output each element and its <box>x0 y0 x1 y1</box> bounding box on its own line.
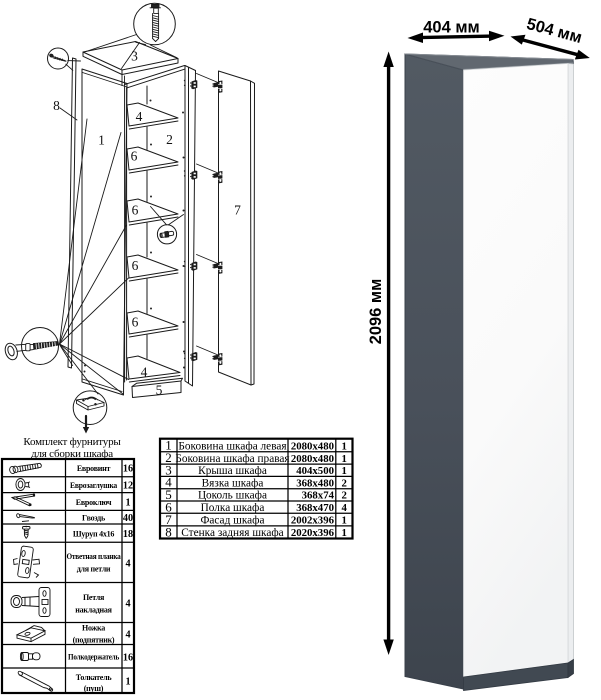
svg-text:3: 3 <box>131 49 138 64</box>
svg-text:1: 1 <box>341 465 346 477</box>
svg-text:Толкатель: Толкатель <box>76 673 113 682</box>
svg-text:368х480: 368х480 <box>296 477 334 489</box>
svg-text:1: 1 <box>341 515 346 527</box>
svg-text:5: 5 <box>156 383 163 398</box>
svg-text:Крыша шкафа: Крыша шкафа <box>198 465 267 477</box>
svg-text:Боковина шкафа правая: Боковина шкафа правая <box>175 453 289 465</box>
svg-text:6: 6 <box>132 203 139 218</box>
svg-text:368х470: 368х470 <box>296 502 334 514</box>
svg-text:404х500: 404х500 <box>296 465 334 477</box>
svg-text:4: 4 <box>125 599 130 610</box>
svg-text:2020х396: 2020х396 <box>291 527 335 539</box>
svg-text:накладная: накладная <box>75 606 112 615</box>
svg-text:Гвоздь: Гвоздь <box>82 514 106 523</box>
svg-text:Вязка шкафа: Вязка шкафа <box>202 477 264 489</box>
svg-text:2080х480: 2080х480 <box>291 453 334 465</box>
svg-text:8: 8 <box>53 98 60 113</box>
svg-text:6: 6 <box>132 315 139 330</box>
svg-text:4: 4 <box>125 559 130 570</box>
svg-text:1: 1 <box>341 440 346 452</box>
svg-text:8: 8 <box>165 524 172 539</box>
svg-text:2002х396: 2002х396 <box>291 515 335 527</box>
svg-text:16: 16 <box>123 464 133 475</box>
svg-text:Евровинт: Евровинт <box>77 464 111 473</box>
svg-text:6: 6 <box>132 258 139 273</box>
svg-text:1: 1 <box>341 527 346 539</box>
svg-text:Фасад шкафа: Фасад шкафа <box>200 515 264 527</box>
svg-text:1: 1 <box>125 498 130 509</box>
svg-text:2: 2 <box>166 132 173 147</box>
svg-text:16: 16 <box>123 652 133 663</box>
svg-text:2: 2 <box>341 490 346 502</box>
svg-text:2096 мм: 2096 мм <box>367 279 385 345</box>
svg-text:Ножка: Ножка <box>82 624 105 633</box>
svg-text:Ответная планка: Ответная планка <box>67 552 121 561</box>
svg-text:(подпятник): (подпятник) <box>73 636 115 645</box>
svg-text:4: 4 <box>136 109 143 124</box>
svg-text:12: 12 <box>123 481 133 492</box>
svg-text:Петля: Петля <box>83 593 105 602</box>
svg-text:40: 40 <box>123 513 133 524</box>
svg-text:Еврозаглушка: Еврозаглушка <box>70 481 117 490</box>
svg-text:1: 1 <box>125 677 130 688</box>
svg-text:2080х480: 2080х480 <box>291 440 334 452</box>
svg-text:Полкодержатель: Полкодержатель <box>68 653 120 662</box>
svg-text:Евроключ: Евроключ <box>76 498 112 507</box>
svg-text:Цоколь шкафа: Цоколь шкафа <box>198 490 267 502</box>
svg-text:2: 2 <box>341 477 346 489</box>
svg-text:1: 1 <box>341 453 346 465</box>
svg-text:18: 18 <box>123 529 133 540</box>
svg-text:404 мм: 404 мм <box>423 19 480 37</box>
svg-text:7: 7 <box>234 203 241 218</box>
svg-text:4: 4 <box>341 502 347 514</box>
svg-text:Полка шкафа: Полка шкафа <box>201 502 265 514</box>
svg-text:4: 4 <box>141 365 148 380</box>
svg-text:4: 4 <box>125 630 130 641</box>
svg-text:Боковина шкафа левая: Боковина шкафа левая <box>178 440 286 452</box>
svg-text:368х74: 368х74 <box>302 490 335 502</box>
svg-text:Комплект фурнитуры: Комплект фурнитуры <box>23 436 121 448</box>
svg-text:Стенка задняя шкафа: Стенка задняя шкафа <box>181 527 283 539</box>
svg-text:6: 6 <box>131 149 138 164</box>
svg-text:Шуруп 4х16: Шуруп 4х16 <box>73 530 114 539</box>
svg-text:(пуш): (пуш) <box>84 684 104 693</box>
svg-text:для петли: для петли <box>77 565 111 574</box>
svg-text:1: 1 <box>98 133 105 148</box>
